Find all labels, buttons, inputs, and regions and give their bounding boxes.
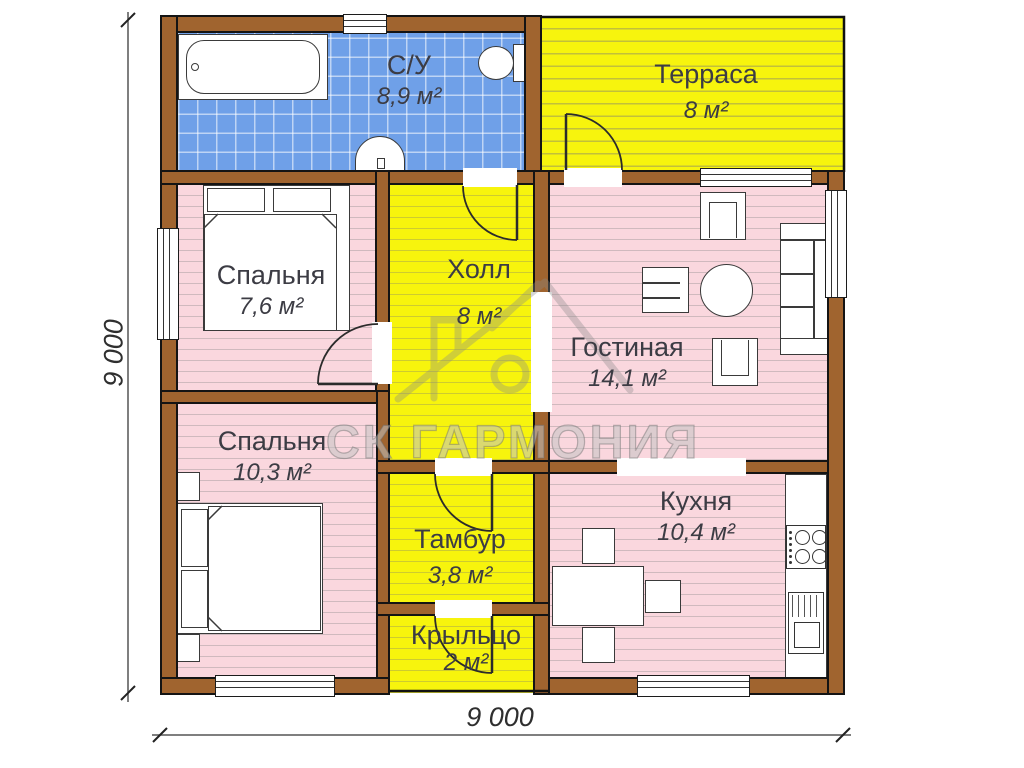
watermark-circle (494, 358, 526, 390)
room-name: Гостиная (570, 333, 683, 361)
label-bedroom-2: Спальня 10,3 м² (218, 427, 327, 487)
watermark-text: СК ГАРМОНИЯ (326, 414, 700, 469)
label-terrace: Терраса 8 м² (654, 60, 758, 125)
label-vestibule: Тамбур 3,8 м² (414, 525, 506, 590)
label-living-room: Гостиная 14,1 м² (570, 333, 683, 393)
room-name: Холл (447, 255, 511, 283)
label-porch: Крыльцо 2 м² (411, 621, 521, 677)
label-hall: Холл 8 м² (447, 255, 511, 331)
room-area: 7,6 м² (217, 293, 326, 321)
room-area: 10,4 м² (657, 519, 735, 547)
room-area: 10,3 м² (218, 459, 327, 487)
room-name: Спальня (217, 261, 326, 289)
room-name: Спальня (218, 427, 327, 455)
label-bathroom: С/У 8,9 м² (377, 51, 441, 111)
room-area: 8,9 м² (377, 83, 441, 111)
floor-plan-canvas: СК ГАРМОНИЯ С/У 8,9 м² Терраса 8 м² Спал… (0, 0, 1024, 768)
label-kitchen: Кухня 10,4 м² (657, 487, 735, 547)
room-name: Терраса (654, 60, 758, 88)
room-area: 8 м² (654, 97, 758, 125)
room-name: С/У (377, 51, 441, 79)
room-area: 14,1 м² (570, 365, 683, 393)
room-area: 3,8 м² (414, 562, 506, 590)
room-area: 2 м² (411, 649, 521, 677)
label-bedroom-1: Спальня 7,6 м² (217, 261, 326, 321)
room-name: Крыльцо (411, 621, 521, 649)
dim-label-bottom: 9 000 (466, 702, 534, 733)
room-area: 8 м² (447, 303, 511, 331)
dim-label-left: 9 000 (99, 319, 130, 387)
room-name: Тамбур (414, 525, 506, 553)
room-name: Кухня (657, 487, 735, 515)
